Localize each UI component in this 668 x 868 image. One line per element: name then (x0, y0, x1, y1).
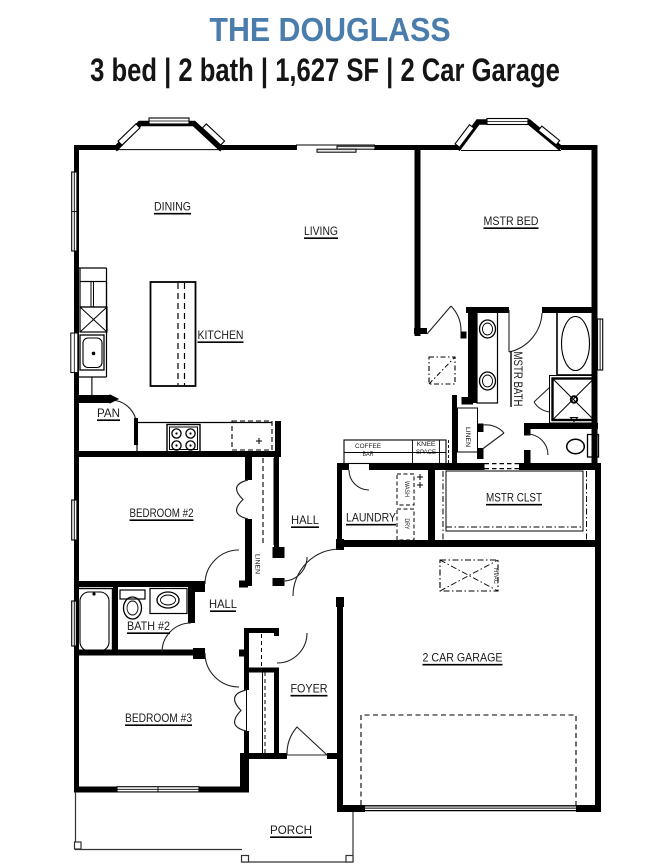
svg-text:HALL: HALL (209, 597, 237, 611)
svg-text:FOYER: FOYER (291, 682, 328, 696)
svg-text:LINEN: LINEN (464, 427, 471, 447)
svg-text:PORCH: PORCH (270, 823, 312, 837)
svg-text:MSTR BED: MSTR BED (484, 214, 539, 228)
svg-text:COFFEE: COFFEE (355, 443, 382, 450)
svg-text:DINING: DINING (154, 200, 191, 214)
svg-text:MSTR CLST: MSTR CLST (486, 491, 543, 505)
svg-text:WASH: WASH (403, 481, 410, 497)
svg-text:SPACE: SPACE (416, 449, 437, 456)
svg-text:PAN: PAN (97, 406, 120, 420)
svg-text:BATH #2: BATH #2 (127, 619, 170, 633)
svg-text:BEDROOM #2: BEDROOM #2 (130, 506, 194, 520)
svg-text:MSTR BATH: MSTR BATH (511, 352, 525, 407)
svg-text:HVAC: HVAC (492, 568, 499, 584)
svg-text:KNEE: KNEE (417, 441, 437, 448)
svg-text:KITCHEN: KITCHEN (198, 328, 244, 342)
svg-text:LINEN: LINEN (254, 554, 261, 574)
svg-text:LIVING: LIVING (304, 224, 338, 238)
svg-text:LAUNDRY: LAUNDRY (346, 511, 396, 525)
svg-text:BEDROOM #3: BEDROOM #3 (125, 711, 192, 725)
svg-text:2 CAR GARAGE: 2 CAR GARAGE (423, 651, 503, 665)
svg-text:BAR: BAR (363, 451, 374, 458)
svg-text:HALL: HALL (291, 513, 319, 527)
svg-text:DRY: DRY (403, 519, 410, 531)
